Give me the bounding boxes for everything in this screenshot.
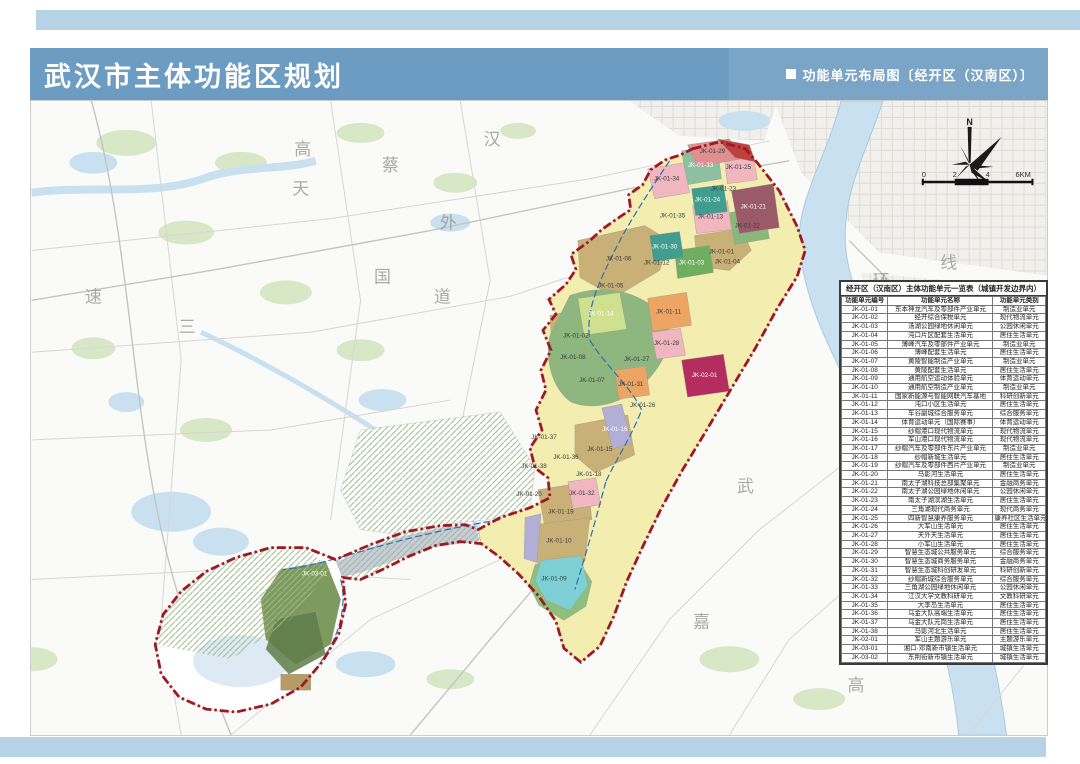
table-cell: 南太子湖滨湖生活单元 (888, 497, 993, 506)
table-row: JK-01-37乌金大队元岗生活单元居住生活单元 (842, 619, 1046, 628)
table-cell: 制造业单元 (993, 305, 1046, 314)
table-cell: 城镇生活单元 (993, 653, 1046, 662)
table-row: JK-01-11国家新能源与智能网联汽车基地科研创新单元 (842, 392, 1046, 401)
table-row: JK-01-22南太子湖公园绿地休闲单元公园休闲单元 (842, 488, 1046, 497)
table-cell: 科研创新单元 (993, 566, 1046, 575)
table-cell: 小军山生活单元 (888, 540, 993, 549)
table-row: JK-01-24三角湖现代商务单元现代商务单元 (842, 505, 1046, 514)
table-cell: 天外天生活单元 (888, 531, 993, 540)
map-zone-label: JK-01-37 (531, 434, 557, 441)
table-cell: JK-01-03 (842, 323, 888, 332)
map-zone-label: JK-01-09 (541, 575, 567, 582)
table-cell: 马影河生活单元 (888, 471, 993, 480)
svg-text:2: 2 (953, 170, 957, 179)
table-cell: 康养社区生活单元 (993, 514, 1046, 523)
table-row: JK-03-01湘口·邓南新市镇生活单元城镇生活单元 (842, 645, 1046, 654)
table-cell: JK-01-07 (842, 357, 888, 366)
svg-text:0: 0 (922, 170, 926, 179)
table-cell: 金融商务单元 (993, 558, 1046, 567)
table-row: JK-01-06薄峰配套生活单元居住生活单元 (842, 349, 1046, 358)
table-row: JK-03-02东荆街新市镇生活单元城镇生活单元 (842, 653, 1046, 662)
map-zone-label: JK-01-21 (741, 204, 767, 211)
table-cell: 体育运动单元 (993, 418, 1046, 427)
table-cell: 居住生活单元 (993, 349, 1046, 358)
table-cell: JK-01-08 (842, 366, 888, 375)
table-row: JK-01-25四新智慧康养服务单元康养社区生活单元 (842, 514, 1046, 523)
table-cell: 主题游乐单元 (993, 636, 1046, 645)
map-zone-label: JK-01-04 (715, 258, 741, 265)
table-cell: 居住生活单元 (993, 331, 1046, 340)
table-cell: JK-01-32 (842, 575, 888, 584)
table-cell: JK-01-23 (842, 497, 888, 506)
table-cell: JK-01-06 (842, 349, 888, 358)
table-cell: 南太子湖科技总部集聚单元 (888, 479, 993, 488)
table-cell: 江汉大学文教科研单元 (888, 592, 993, 601)
table-cell: 马影河北生活单元 (888, 627, 993, 636)
table-row: JK-01-20马影河生活单元居住生活单元 (842, 471, 1046, 480)
table-cell: JK-01-22 (842, 488, 888, 497)
table-cell: 居住生活单元 (993, 627, 1046, 636)
table-cell: 居住生活单元 (993, 497, 1046, 506)
table-cell: 居住生活单元 (993, 540, 1046, 549)
map-zone-label: JK-01-27 (624, 356, 650, 363)
table-cell: 现代物流单元 (993, 436, 1046, 445)
table-cell: JK-01-02 (842, 314, 888, 323)
table-cell: 城镇生活单元 (993, 645, 1046, 654)
svg-text:6KM: 6KM (1015, 170, 1030, 179)
table-cell: 制造业单元 (993, 384, 1046, 393)
table-cell: 大军山生活单元 (888, 523, 993, 532)
table-cell: 乌金大队元岗生活单元 (888, 619, 993, 628)
table-cell: JK-03-02 (842, 653, 888, 662)
table-cell: JK-01-13 (842, 410, 888, 419)
planning-map-page: 武汉市主体功能区规划 功能单元布局图〔经开区（汉南区）〕 (0, 0, 1080, 764)
svg-text:4: 4 (986, 170, 990, 179)
basemap-place-label: 高 (848, 676, 865, 695)
table-row: JK-01-02经开综合保税单元现代物流单元 (842, 314, 1046, 323)
table-cell: 现代商务单元 (993, 505, 1046, 514)
table-cell: 纱帽汽车及零部件东片产业单元 (888, 444, 993, 453)
map-zone-label: JK-01-13 (698, 214, 724, 221)
table-row: JK-01-13车谷副城综合服务单元综合服务单元 (842, 410, 1046, 419)
table-row: JK-01-36乌金大队高端生活单元居住生活单元 (842, 610, 1046, 619)
table-cell: JK-01-24 (842, 505, 888, 514)
map-zone-label: JK-01-03 (679, 259, 705, 266)
basemap-place-label: 汉 (484, 130, 501, 149)
top-accent-strip (36, 10, 1080, 30)
table-cell: 湘口·邓南新市镇生活单元 (888, 645, 993, 654)
table-cell: 居住生活单元 (993, 601, 1046, 610)
table-cell: JK-01-19 (842, 462, 888, 471)
table-row: JK-01-14体育运动单元（国际赛事）体育运动单元 (842, 418, 1046, 427)
table-cell: 公园休闲单元 (993, 488, 1046, 497)
north-label: N (966, 117, 972, 127)
map-zone-label: JK-01-24 (695, 197, 721, 204)
table-cell: JK-01-17 (842, 444, 888, 453)
table-cell: 综合服务单元 (993, 575, 1046, 584)
table-row: JK-01-16军山港口现代物流单元现代物流单元 (842, 436, 1046, 445)
table-cell: JK-01-16 (842, 436, 888, 445)
table-cell: JK-01-11 (842, 392, 888, 401)
bottom-accent-strip (0, 737, 1046, 757)
table-cell: 体育运动单元 (993, 375, 1046, 384)
table-cell: 四新智慧康养服务单元 (888, 514, 993, 523)
header-band: 武汉市主体功能区规划 功能单元布局图〔经开区（汉南区）〕 (30, 48, 1048, 100)
table-cell: 居住生活单元 (993, 531, 1046, 540)
table-cell: JK-01-25 (842, 514, 888, 523)
table-row: JK-01-15纱帽港口现代物流单元现代物流单元 (842, 427, 1046, 436)
table-cell: 居住生活单元 (993, 401, 1046, 410)
table-cell: 东本神龙汽车及零部件产业单元 (888, 305, 993, 314)
table-cell: 三角湖现代商务单元 (888, 505, 993, 514)
table-cell: 东荆街新市镇生活单元 (888, 653, 993, 662)
table-cell: 军山港口现代物流单元 (888, 436, 993, 445)
table-cell: 沌口小区生活单元 (888, 401, 993, 410)
table-cell: JK-01-05 (842, 340, 888, 349)
table-row: JK-01-33三角湖公园绿地休闲单元公园休闲单元 (842, 584, 1046, 593)
table-cell: JK-01-01 (842, 305, 888, 314)
table-cell: JK-01-27 (842, 531, 888, 540)
header-left: 武汉市主体功能区规划 (30, 48, 729, 100)
table-row: JK-01-28小军山生活单元居住生活单元 (842, 540, 1046, 549)
table-cell: 通用航空制造产业单元 (888, 384, 993, 393)
table-cell: JK-01-37 (842, 619, 888, 628)
basemap-place-label: 武 (737, 477, 754, 496)
map-zone-label: JK-01-06 (606, 255, 632, 262)
table-cell: JK-01-28 (842, 540, 888, 549)
table-row: JK-01-10通用航空制造产业单元制造业单元 (842, 384, 1046, 393)
table-cell: 金融商务单元 (993, 479, 1046, 488)
basemap-place-label: 道 (434, 287, 451, 306)
table-row: JK-01-30智慧生态城商务服务单元金融商务单元 (842, 558, 1046, 567)
col-header-category: 功能单元类别 (993, 297, 1046, 306)
table-cell: 黄陵配套生活单元 (888, 366, 993, 375)
map-zone-label: JK-01-34 (654, 176, 680, 183)
table-cell: 国家新能源与智能网联汽车基地 (888, 392, 993, 401)
table-row: JK-01-09通用航空运动体验单元体育运动单元 (842, 375, 1046, 384)
table-cell: JK-01-35 (842, 601, 888, 610)
table-cell: 公园休闲单元 (993, 323, 1046, 332)
legend-table: 经开区（汉南区）主体功能单元一览表（城镇开发边界内） 功能单元编号 功能单元名称… (839, 280, 1048, 665)
table-cell: 通用航空运动体验单元 (888, 375, 993, 384)
map-zone-label: JK-01-11 (656, 308, 681, 315)
table-row: JK-01-12沌口小区生活单元居住生活单元 (842, 401, 1046, 410)
header-right: 功能单元布局图〔经开区（汉南区）〕 (729, 48, 1048, 100)
table-cell: 居住生活单元 (993, 619, 1046, 628)
map-zone-label: JK-02-01 (692, 372, 718, 379)
table-cell: 大李岛生活单元 (888, 601, 993, 610)
subtitle-square-icon (786, 69, 796, 79)
map-zone-label: JK-01-31 (618, 381, 644, 388)
table-cell: 居住生活单元 (993, 471, 1046, 480)
table-cell: 薄峰配套生活单元 (888, 349, 993, 358)
map-zone-label: JK-01-07 (579, 377, 605, 384)
map-zone-label: JK-01-05 (598, 282, 624, 289)
table-cell: 居住生活单元 (993, 453, 1046, 462)
basemap-place-label: 嘉 (693, 612, 710, 631)
table-cell: 制造业单元 (993, 357, 1046, 366)
table-row: JK-01-38马影河北生活单元居住生活单元 (842, 627, 1046, 636)
table-cell: 现代物流单元 (993, 314, 1046, 323)
basemap-place-label: 高 (294, 140, 311, 159)
table-cell: JK-01-38 (842, 627, 888, 636)
table-cell: JK-01-12 (842, 401, 888, 410)
table-row: JK-01-35大李岛生活单元居住生活单元 (842, 601, 1046, 610)
table-cell: 三角湖公园绿地休闲单元 (888, 584, 993, 593)
table-cell: 制造业单元 (993, 340, 1046, 349)
table-cell: 制造业单元 (993, 444, 1046, 453)
basemap-place-label: 国 (374, 267, 391, 286)
table-row: JK-01-26大军山生活单元居住生活单元 (842, 523, 1046, 532)
table-cell: JK-01-14 (842, 418, 888, 427)
map-zone-label: JK-01-14 (588, 310, 614, 317)
table-cell: 黄陵智能制造产业单元 (888, 357, 993, 366)
page-title: 武汉市主体功能区规划 (44, 55, 344, 94)
table-cell: 军山主题游乐单元 (888, 636, 993, 645)
map-zone-label: JK-03-01 (302, 571, 328, 578)
table-cell: 南太子湖公园绿地休闲单元 (888, 488, 993, 497)
table-cell: JK-01-36 (842, 610, 888, 619)
map-zone-label: JK-01-15 (587, 446, 613, 453)
map-area: 汉蔡高天外国道速三线环武嘉澳高 JK-01-29JK-01-33JK-01-25… (30, 100, 1048, 736)
table-cell: 文教科研单元 (993, 592, 1046, 601)
table-cell: JK-01-09 (842, 375, 888, 384)
table-cell: JK-01-21 (842, 479, 888, 488)
table-row: JK-01-17纱帽汽车及零部件东片产业单元制造业单元 (842, 444, 1046, 453)
col-header-code: 功能单元编号 (842, 297, 888, 306)
table-row: JK-01-01东本神龙汽车及零部件产业单元制造业单元 (842, 305, 1046, 314)
table-cell: JK-01-34 (842, 592, 888, 601)
col-header-name: 功能单元名称 (888, 297, 993, 306)
basemap-place-label: 速 (85, 287, 102, 306)
map-zone-label: JK-01-38 (521, 463, 547, 470)
table-cell: JK-01-31 (842, 566, 888, 575)
table-row: JK-01-04沌口片区配套生活单元居住生活单元 (842, 331, 1046, 340)
table-cell: JK-01-29 (842, 549, 888, 558)
map-zone-label: JK-01-22 (735, 223, 761, 230)
table-cell: JK-01-20 (842, 471, 888, 480)
map-zone-label: JK-01-18 (576, 471, 602, 478)
table-cell: JK-01-26 (842, 523, 888, 532)
table-row: JK-01-31智慧生态城科创研发单元科研创新单元 (842, 566, 1046, 575)
legend-header-row: 功能单元编号 功能单元名称 功能单元类别 (842, 297, 1046, 306)
table-cell: JK-01-10 (842, 384, 888, 393)
table-cell: JK-01-04 (842, 331, 888, 340)
legend-table-title: 经开区（汉南区）主体功能单元一览表（城镇开发边界内） (841, 282, 1046, 296)
table-cell: JK-03-01 (842, 645, 888, 654)
table-cell: JK-01-33 (842, 584, 888, 593)
table-row: JK-01-32纱帽新城综合服务单元综合服务单元 (842, 575, 1046, 584)
table-row: JK-01-08黄陵配套生活单元居住生活单元 (842, 366, 1046, 375)
basemap-place-label: 线 (940, 253, 957, 272)
map-zone-label: JK-01-10 (546, 538, 572, 545)
table-cell: 居住生活单元 (993, 366, 1046, 375)
map-zone-label: JK-01-35 (660, 213, 686, 220)
table-cell: 现代物流单元 (993, 427, 1046, 436)
map-zone-label: JK-01-25 (726, 164, 752, 171)
table-row: JK-01-27天外天生活单元居住生活单元 (842, 531, 1046, 540)
table-cell: 制造业单元 (993, 462, 1046, 471)
table-cell: JK-01-30 (842, 558, 888, 567)
map-zone-label: JK-01-19 (548, 509, 574, 516)
basemap-place-label: 天 (292, 180, 309, 199)
table-cell: 科研创新单元 (993, 392, 1046, 401)
map-zone-label: JK-01-08 (560, 354, 586, 361)
table-cell: 沌口片区配套生活单元 (888, 331, 993, 340)
table-cell: JK-01-18 (842, 453, 888, 462)
basemap-place-label: 外 (440, 214, 457, 233)
table-cell: 智慧生态城商务服务单元 (888, 558, 993, 567)
table-cell: 纱帽新城生活单元 (888, 453, 993, 462)
table-row: JK-02-01军山主题游乐单元主题游乐单元 (842, 636, 1046, 645)
table-row: JK-01-07黄陵智能制造产业单元制造业单元 (842, 357, 1046, 366)
map-zone-label: JK-01-30 (652, 244, 678, 251)
map-zone-label: JK-01-33 (688, 162, 714, 169)
table-cell: 公园休闲单元 (993, 584, 1046, 593)
table-cell: 智慧生态城公共服务单元 (888, 549, 993, 558)
map-zone-label: JK-01-02 (563, 332, 589, 339)
basemap-place-label: 蔡 (382, 156, 399, 175)
table-row: JK-01-05薄峰汽车及零部件产业单元制造业单元 (842, 340, 1046, 349)
map-zone-label: JK-01-16 (602, 426, 628, 433)
table-cell: 乌金大队高端生活单元 (888, 610, 993, 619)
table-cell: JK-01-15 (842, 427, 888, 436)
table-row: JK-01-34江汉大学文教科研单元文教科研单元 (842, 592, 1046, 601)
basemap-place-label: 三 (179, 317, 196, 336)
map-zone-label: JK-01-26 (630, 402, 656, 409)
table-cell: 智慧生态城科创研发单元 (888, 566, 993, 575)
table-row: JK-01-21南太子湖科技总部集聚单元金融商务单元 (842, 479, 1046, 488)
map-zone-label: JK-01-20 (516, 491, 542, 498)
table-row: JK-01-29智慧生态城公共服务单元综合服务单元 (842, 549, 1046, 558)
table-cell: 纱帽汽车及零部件西片产业单元 (888, 462, 993, 471)
table-cell: JK-02-01 (842, 636, 888, 645)
table-cell: 车谷副城综合服务单元 (888, 410, 993, 419)
map-zone-label: JK-01-28 (654, 340, 680, 347)
map-zone-label: JK-01-01 (709, 249, 735, 256)
table-row: JK-01-19纱帽汽车及零部件西片产业单元制造业单元 (842, 462, 1046, 471)
table-row: JK-01-03汤湖公园绿地休闲单元公园休闲单元 (842, 323, 1046, 332)
table-cell: 薄峰汽车及零部件产业单元 (888, 340, 993, 349)
map-zone-label: JK-01-23 (711, 186, 737, 193)
table-cell: 纱帽新城综合服务单元 (888, 575, 993, 584)
table-cell: 纱帽港口现代物流单元 (888, 427, 993, 436)
table-cell: 汤湖公园绿地休闲单元 (888, 323, 993, 332)
table-row: JK-01-18纱帽新城生活单元居住生活单元 (842, 453, 1046, 462)
map-zone-label: JK-01-36 (553, 454, 579, 461)
table-cell: 体育运动单元（国际赛事） (888, 418, 993, 427)
map-zone-label: JK-01-12 (644, 259, 670, 266)
table-cell: 综合服务单元 (993, 410, 1046, 419)
table-cell: 居住生活单元 (993, 523, 1046, 532)
table-cell: 居住生活单元 (993, 610, 1046, 619)
table-cell: 综合服务单元 (993, 549, 1046, 558)
table-cell: 经开综合保税单元 (888, 314, 993, 323)
map-zone-label: JK-01-32 (569, 490, 595, 497)
page-subtitle: 功能单元布局图〔经开区（汉南区）〕 (802, 65, 1034, 84)
table-row: JK-01-23南太子湖滨湖生活单元居住生活单元 (842, 497, 1046, 506)
map-zone-label: JK-01-29 (700, 148, 726, 155)
